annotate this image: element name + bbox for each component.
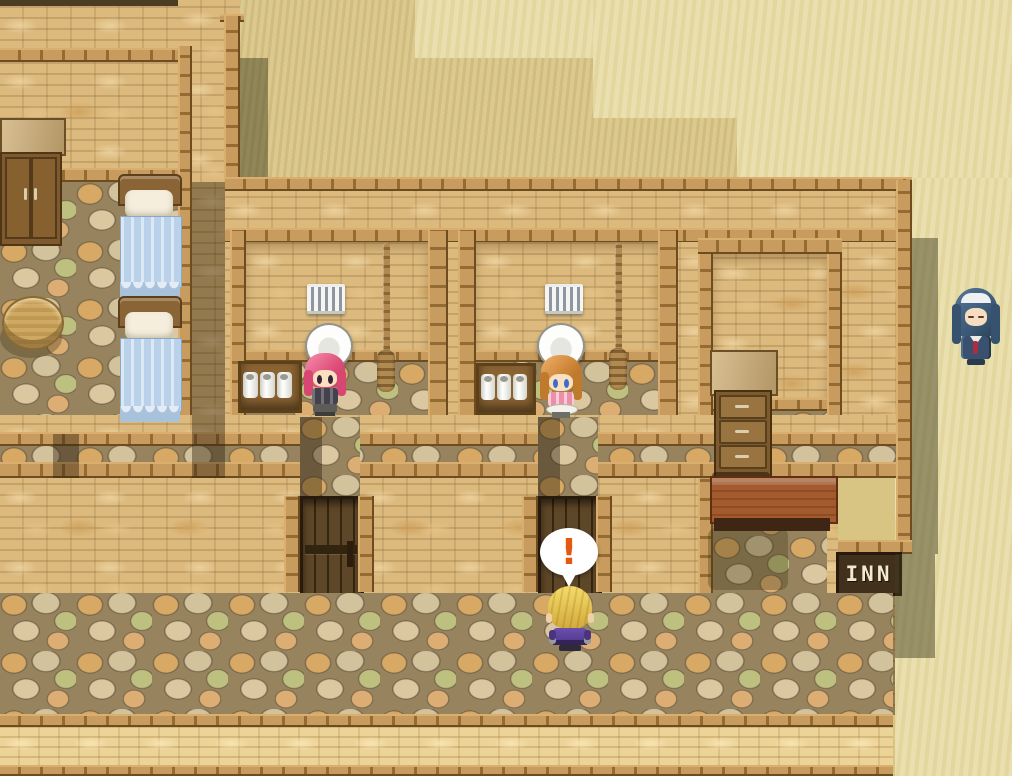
wardrobe-handle	[24, 188, 27, 200]
door2-frame-left	[522, 496, 538, 592]
door2-column-shadow	[538, 417, 560, 503]
building-shadow-on-sand	[912, 238, 938, 554]
toilet-base-foot	[315, 412, 335, 416]
bed-lower[interactable]	[118, 296, 182, 424]
closed-eye	[968, 316, 974, 318]
character-orange-hair-girl[interactable]	[540, 354, 582, 418]
platform-edge-wall	[0, 727, 893, 766]
stall2-right-beam	[658, 230, 678, 418]
feet	[967, 359, 985, 365]
stall2-left-beam	[458, 230, 476, 418]
body	[312, 388, 338, 405]
cobble-path	[0, 593, 893, 715]
stall2-hanging-rope	[615, 243, 622, 353]
drawer	[719, 395, 767, 419]
drawer	[719, 445, 767, 469]
character-blonde-hero[interactable]	[546, 586, 594, 654]
inn-sign-text: INN	[846, 562, 893, 586]
desk-shadow	[708, 528, 788, 590]
ear	[546, 613, 552, 623]
headband	[961, 293, 991, 303]
chest-of-drawers[interactable]	[714, 390, 772, 478]
band-beam-upper	[0, 432, 912, 446]
wardrobe-handle	[34, 188, 37, 200]
building-right-edge-beam	[896, 180, 912, 552]
toilet-pedestal	[552, 412, 570, 418]
hair-side	[337, 370, 346, 396]
speech-bubble-tail	[562, 574, 576, 587]
north-wall	[225, 191, 912, 229]
feet	[559, 645, 581, 651]
arm	[584, 630, 591, 644]
door1-column-shadow	[300, 417, 322, 503]
bed-blanket	[120, 338, 182, 412]
door-left[interactable]	[300, 496, 364, 598]
alert-speech-bubble: !	[540, 528, 598, 576]
stall1-paper-shelf[interactable]	[238, 361, 302, 413]
tall-wall-edge-beam	[224, 16, 240, 182]
door2-frame-right	[596, 496, 612, 592]
desk-base	[714, 518, 830, 531]
inn-sign[interactable]: INN	[836, 552, 902, 596]
hair-tress	[991, 304, 1000, 344]
eye	[564, 379, 569, 388]
platform-edge-beam-bottom	[0, 765, 893, 776]
character-pink-hair-girl[interactable]	[304, 352, 346, 416]
alcove-cap-beam	[698, 238, 842, 254]
toilet-paper-roll	[260, 372, 275, 398]
toilet-paper-roll	[481, 374, 495, 400]
eye	[317, 375, 322, 384]
red-tie	[973, 341, 978, 354]
column-shadow-on-sand	[895, 554, 935, 658]
hair-back	[548, 586, 592, 629]
reception-desk[interactable]	[710, 476, 838, 524]
eye	[328, 375, 333, 384]
alert-exclamation: !	[561, 532, 577, 573]
stall1-rope-coil	[377, 350, 395, 392]
bed-ruffle	[120, 406, 180, 422]
stall2-paper-shelf[interactable]	[476, 363, 536, 415]
game-viewport[interactable]: INN	[0, 0, 1012, 776]
band-shadow-left	[53, 434, 79, 478]
bed-blanket	[120, 216, 182, 288]
ear	[588, 613, 594, 623]
round-table[interactable]	[2, 296, 64, 350]
arm	[549, 630, 556, 644]
band-shadow-alley	[192, 415, 225, 478]
bed-pillow	[125, 190, 173, 218]
toilet-paper-roll	[277, 372, 292, 398]
bed-pillow	[125, 312, 173, 340]
hair-tress	[952, 304, 961, 344]
stall2-rope-coil	[609, 348, 627, 390]
north-wall-top-beam	[225, 177, 912, 191]
toilet-paper-roll	[513, 374, 527, 400]
hair-side	[573, 372, 582, 400]
stall1-right-beam	[428, 230, 448, 418]
stall1-hanging-rope	[383, 243, 390, 355]
door-latch	[347, 541, 353, 567]
wardrobe-door-left	[5, 157, 31, 239]
door1-frame-left	[284, 496, 300, 592]
closed-eye	[978, 316, 984, 318]
stall1-barred-window	[307, 284, 345, 314]
toilet-paper-roll	[497, 374, 511, 400]
drawer	[719, 420, 767, 444]
eye	[553, 379, 558, 388]
platform-edge-beam-top	[0, 714, 893, 727]
sand-light-terrace	[737, 0, 1012, 180]
wall-shadow-on-sand	[240, 58, 268, 178]
character-blue-hair-npc[interactable]	[952, 288, 1000, 366]
wardrobe[interactable]	[0, 152, 62, 246]
door1-frame-right	[358, 496, 374, 592]
bedroom-wall-beam	[0, 48, 192, 62]
stall2-barred-window	[545, 284, 583, 314]
wardrobe-cornice	[0, 118, 66, 156]
toilet-paper-roll	[243, 372, 258, 398]
bed-upper[interactable]	[118, 174, 182, 300]
